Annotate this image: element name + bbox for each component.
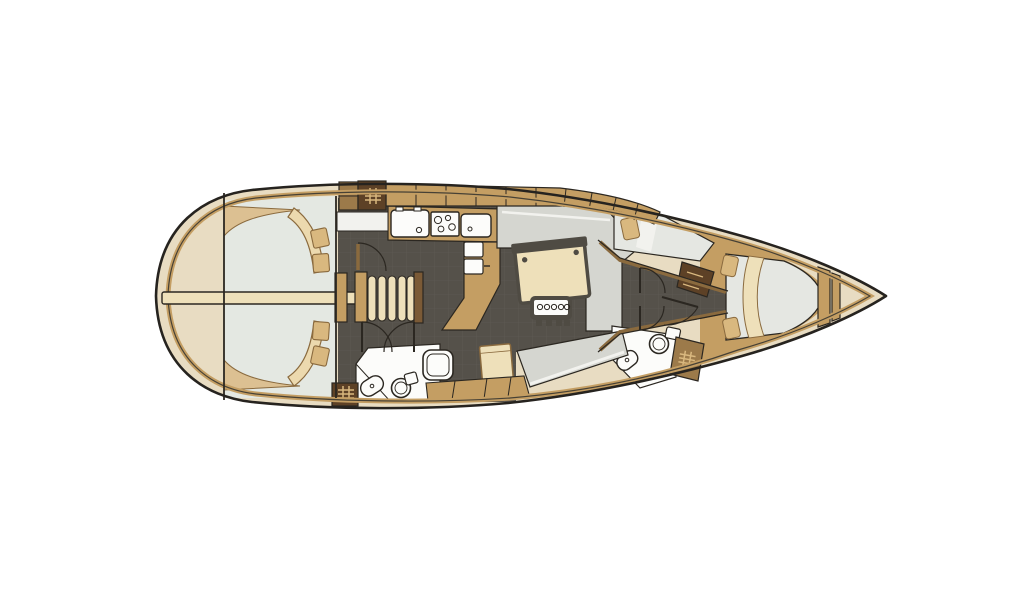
winch-pad [312, 253, 329, 272]
instrument-foot [556, 320, 562, 326]
faucet-icon [396, 207, 403, 211]
galley-stove [431, 212, 459, 236]
step [398, 276, 406, 321]
toilet-cistern [404, 372, 418, 386]
instrument-panel [530, 296, 572, 326]
fridge-box [464, 259, 483, 274]
winch-pad [312, 321, 329, 340]
step [368, 276, 376, 321]
companionway-rail [355, 272, 367, 322]
instrument-foot [536, 320, 542, 326]
winch-pad [310, 228, 329, 249]
salon-table [511, 236, 593, 304]
sideboard-shelf [337, 212, 388, 231]
faucet-icon [414, 207, 421, 211]
step-end-rail [414, 272, 423, 323]
instrument-foot [546, 320, 552, 326]
yacht-floorplan-page [0, 0, 1024, 600]
fridge-box [464, 242, 483, 257]
step [388, 276, 396, 321]
instrument-foot [564, 320, 570, 326]
step [378, 276, 386, 321]
galley-second-sink [461, 214, 491, 237]
winch-pad [310, 346, 329, 367]
galley-sink [391, 210, 429, 237]
yacht-floorplan-drawing [0, 0, 1024, 600]
